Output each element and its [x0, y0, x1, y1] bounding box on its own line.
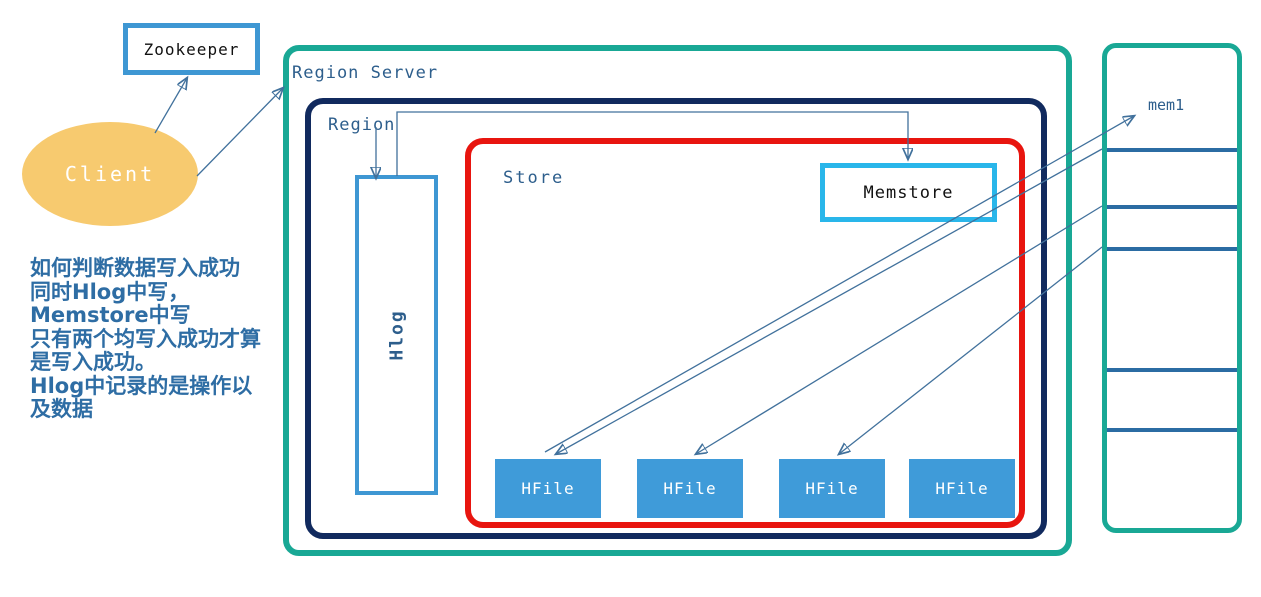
- memstore-node: Memstore: [820, 163, 997, 222]
- arrow-client-to-zookeeper: [155, 78, 187, 133]
- hfile-node: HFile: [495, 459, 601, 518]
- hfile-label: HFile: [935, 479, 988, 498]
- hlog-node: Hlog: [355, 175, 438, 495]
- note-line: 是写入成功。: [30, 351, 300, 375]
- note-line: Hlog中记录的是操作以: [30, 375, 300, 399]
- annotation-note: 如何判断数据写入成功 同时Hlog中写， Memstore中写 只有两个均写入成…: [30, 257, 300, 422]
- store-label: Store: [503, 168, 564, 188]
- hfile-label: HFile: [521, 479, 574, 498]
- hfile-node: HFile: [909, 459, 1015, 518]
- diagram-canvas: Zookeeper Client 如何判断数据写入成功 同时Hlog中写， Me…: [0, 0, 1261, 597]
- note-line: Memstore中写: [30, 304, 300, 328]
- hfile-label: HFile: [663, 479, 716, 498]
- zookeeper-label: Zookeeper: [144, 40, 240, 59]
- arrow-client-to-region-server: [197, 88, 283, 176]
- client-label: Client: [65, 162, 155, 186]
- region-server-label: Region Server: [292, 63, 438, 83]
- note-line: 只有两个均写入成功才算: [30, 328, 300, 352]
- memory-column-node: [1102, 43, 1242, 533]
- memory-column-divider: [1107, 368, 1237, 372]
- note-line: 如何判断数据写入成功: [30, 257, 300, 281]
- hfile-node: HFile: [637, 459, 743, 518]
- note-line: 及数据: [30, 398, 300, 422]
- hfile-node: HFile: [779, 459, 885, 518]
- zookeeper-node: Zookeeper: [123, 23, 260, 75]
- client-node: Client: [22, 122, 198, 226]
- hlog-label: Hlog: [386, 309, 407, 360]
- memory-column-divider: [1107, 428, 1237, 432]
- memory-column-divider: [1107, 205, 1237, 209]
- memory-column-divider: [1107, 247, 1237, 251]
- region-label: Region: [328, 115, 395, 135]
- mem1-label: mem1: [1148, 96, 1184, 114]
- memory-column-divider: [1107, 148, 1237, 152]
- memstore-label: Memstore: [864, 183, 954, 203]
- hfile-label: HFile: [805, 479, 858, 498]
- note-line: 同时Hlog中写，: [30, 281, 300, 305]
